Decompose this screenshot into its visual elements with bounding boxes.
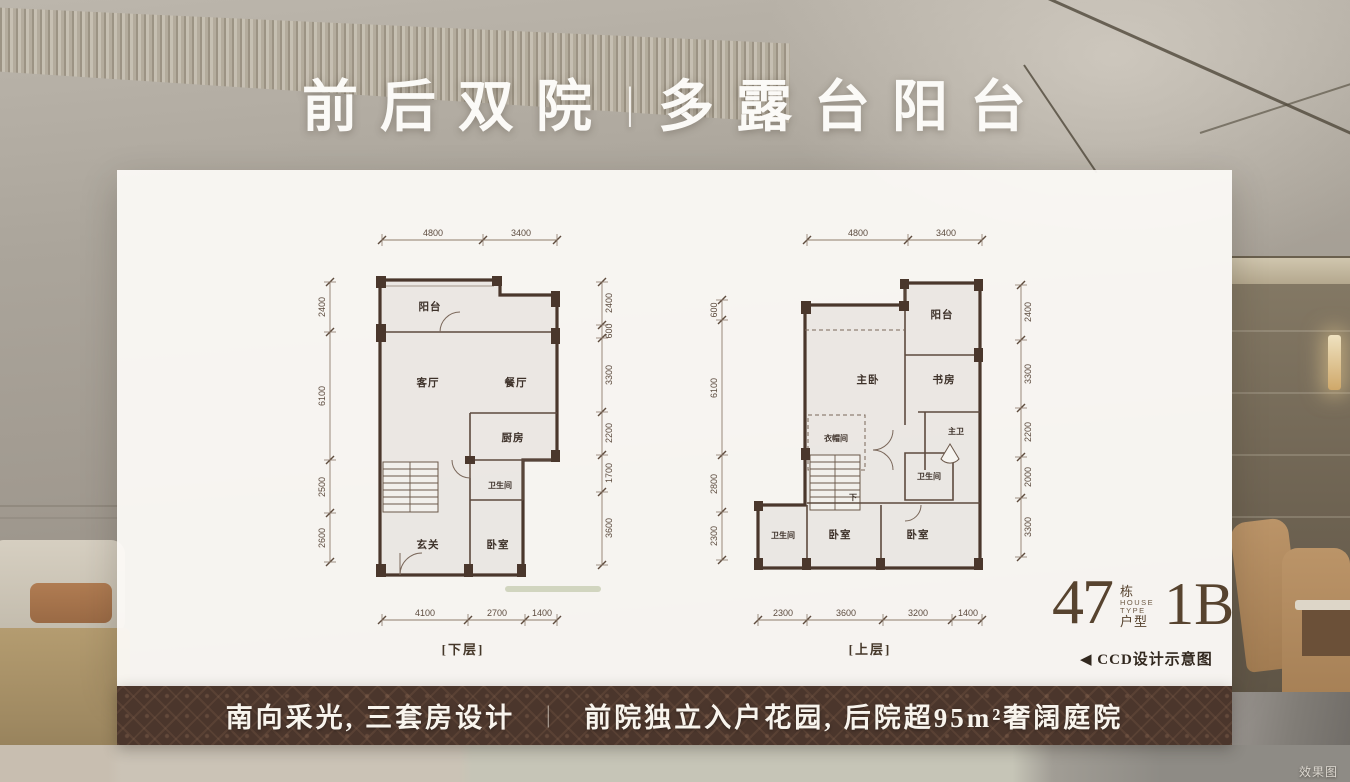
dim-label: 1400 xyxy=(958,608,978,618)
plan-geometry xyxy=(376,276,560,577)
room-label: 玄关 xyxy=(417,538,440,551)
dim-label: 1700 xyxy=(604,463,614,483)
wall-trim-line xyxy=(0,517,118,519)
dim-label: 2400 xyxy=(317,297,327,317)
dim-label: 3300 xyxy=(604,365,614,385)
unit-code: 1B xyxy=(1164,578,1234,631)
room-label: 卫生间 xyxy=(488,480,512,490)
room-label: 厨房 xyxy=(502,431,525,444)
dim-label: 4800 xyxy=(848,228,868,238)
dim-label: 600 xyxy=(604,323,614,338)
unit-type-block: 47 栋 HOUSE TYPE 户型 1B xyxy=(1052,574,1234,630)
dining-table-top xyxy=(1295,600,1350,610)
dim-label: 3300 xyxy=(1023,517,1033,537)
dim-label: 2600 xyxy=(317,528,327,548)
building-label: 栋 xyxy=(1120,585,1154,599)
dim-label: 2400 xyxy=(1023,302,1033,322)
headline: 前后双院丨多露台阳台 xyxy=(0,80,1350,136)
room-label: 卧室 xyxy=(487,538,510,551)
dim-label: 3400 xyxy=(511,228,531,238)
dim-label: 2300 xyxy=(709,526,719,546)
dim-label: 3600 xyxy=(604,518,614,538)
room-label: 卫生间 xyxy=(917,471,941,481)
dim-label: 2800 xyxy=(709,474,719,494)
room-label: 卧室 xyxy=(829,528,852,541)
room-label: 书房 xyxy=(933,373,956,386)
banner-divider: ｜ xyxy=(537,700,562,732)
dim-label: 2300 xyxy=(773,608,793,618)
room-label: 卧室 xyxy=(907,528,930,541)
dim-label: 6100 xyxy=(709,378,719,398)
dim-label: 2400 xyxy=(604,293,614,313)
dims-left: 600610028002300 xyxy=(709,302,719,546)
dim-label: 4100 xyxy=(415,608,435,618)
dim-label: 3300 xyxy=(1023,364,1033,384)
selling-points-banner: 南向采光, 三套房设计 ｜ 前院独立入户花园, 后院超95m²奢阔庭院 xyxy=(117,686,1232,745)
dims-left: 2400610025002600 xyxy=(317,297,327,548)
headline-divider: 丨 xyxy=(618,87,642,131)
type-column: 栋 HOUSE TYPE 户型 xyxy=(1120,585,1154,628)
cabinet-shelf-line xyxy=(1232,516,1350,518)
dim-label: 2000 xyxy=(1023,467,1033,487)
marketing-slide: 前后双院丨多露台阳台 xyxy=(0,0,1350,782)
room-label: 衣帽间 xyxy=(824,433,848,443)
banner-text-right: 前院独立入户花园, 后院超95m²奢阔庭院 xyxy=(584,696,1123,735)
room-label: 下 xyxy=(849,493,857,502)
dim-label: 4800 xyxy=(423,228,443,238)
pendant-lamp xyxy=(1328,335,1341,390)
plan-caption-upper: [上层] xyxy=(849,642,892,657)
dim-label: 6100 xyxy=(317,386,327,406)
dim-label: 2200 xyxy=(604,423,614,443)
render-watermark: 效果图 xyxy=(1299,763,1338,780)
dims-right: 24006003300220017003600 xyxy=(604,293,614,538)
sofa-pillow xyxy=(30,583,112,623)
room-label: 卫生间 xyxy=(771,530,795,540)
building-number: 47 xyxy=(1052,574,1112,630)
headline-right: 多露台阳台 xyxy=(658,77,1048,139)
room-labels-small: 卫生间 xyxy=(488,480,512,490)
dim-label: 2700 xyxy=(487,608,507,618)
stairs xyxy=(383,462,438,512)
dims-top: 48003400 xyxy=(423,228,531,238)
floor-plan-upper: 48003400 2300360032001400 60061002800230… xyxy=(700,225,1050,665)
dim-label: 3400 xyxy=(936,228,956,238)
room-label: 阳台 xyxy=(931,308,954,321)
room-label: 主卧 xyxy=(857,373,880,386)
cabinet-shelf-line xyxy=(1232,454,1350,456)
dim-label: 3600 xyxy=(836,608,856,618)
dim-label: 1400 xyxy=(532,608,552,618)
room-label: 餐厅 xyxy=(504,376,528,389)
banner-text-left: 南向采光, 三套房设计 xyxy=(226,696,516,735)
dim-label: 2200 xyxy=(1023,422,1033,442)
dims-bottom: 410027001400 xyxy=(415,608,552,618)
cabinet-shelf-line xyxy=(1232,392,1350,394)
dining-table xyxy=(1302,610,1350,656)
dims-bottom: 2300360032001400 xyxy=(773,608,978,618)
foreground-furniture xyxy=(0,745,1350,782)
room-label: 客厅 xyxy=(416,376,440,389)
unit-label: 户型 xyxy=(1120,615,1154,629)
headline-left: 前后双院 xyxy=(302,77,614,139)
wood-trim-band xyxy=(1232,256,1350,284)
design-credit-note: ◀ CCD设计示意图 xyxy=(1080,648,1213,669)
plan-caption-lower: [下层] xyxy=(442,642,485,657)
dims-top: 48003400 xyxy=(848,228,956,238)
cabinet-shelf-line xyxy=(1232,330,1350,332)
floor-plan-lower: 48003400 410027001400 2400610025002600 2… xyxy=(295,225,645,665)
dim-label: 3200 xyxy=(908,608,928,618)
wall-trim-line xyxy=(0,505,118,507)
dim-label: 2500 xyxy=(317,477,327,497)
room-label: 阳台 xyxy=(419,300,442,313)
plan-geometry xyxy=(754,279,983,570)
room-label: 主卫 xyxy=(948,426,964,436)
dim-label: 600 xyxy=(709,302,719,317)
